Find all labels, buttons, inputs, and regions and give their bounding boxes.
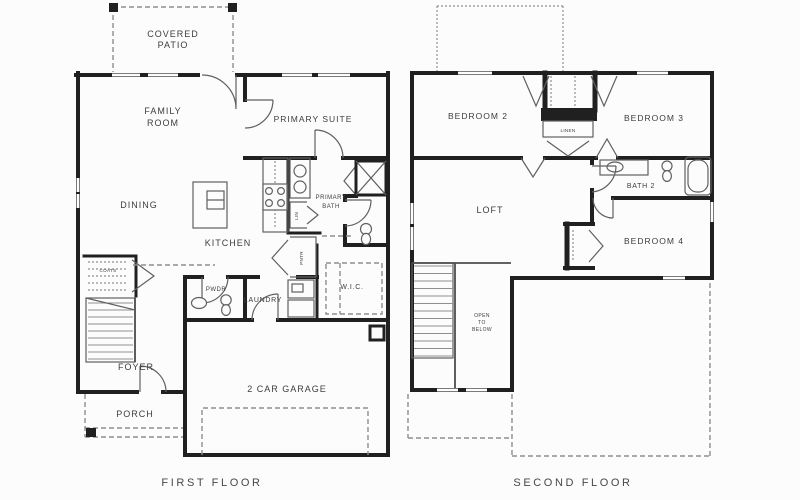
linen-door-chevron	[547, 141, 589, 156]
patio-door-arc	[202, 75, 236, 109]
toilet-icon	[361, 224, 372, 245]
sink-icon	[294, 165, 306, 177]
first-floor-title: FIRST FLOOR	[161, 477, 262, 489]
window	[112, 72, 140, 78]
window	[409, 203, 415, 224]
second-floor-plan: LINEN	[408, 6, 715, 489]
bath2-label: BATH 2	[627, 183, 655, 190]
primary-bath-door-arc	[315, 130, 343, 158]
covered-patio-label: COVERED	[147, 29, 199, 39]
toilet-icon	[221, 295, 231, 316]
powder-room-fixtures	[192, 295, 232, 316]
primary-bath-label: PRIMARY	[316, 195, 347, 201]
bifold-door-chevron	[589, 230, 603, 262]
bedroom3-label: BEDROOM 3	[624, 113, 684, 123]
sink-icon	[607, 162, 623, 172]
family-room-label: ROOM	[147, 118, 179, 128]
first-floor-plan: COVERED PATIO	[75, 3, 388, 489]
window	[466, 387, 487, 393]
bedroom2-label: BEDROOM 2	[448, 111, 508, 121]
closet-rod-icon	[551, 76, 575, 106]
porch-outline: PORCH	[85, 394, 183, 437]
foyer-label: FOYER	[118, 362, 154, 372]
porch-post-icon	[86, 428, 96, 437]
open-to-below-label: BELOW	[472, 327, 492, 333]
garage-label: 2 CAR GARAGE	[247, 384, 327, 394]
bedroom2-door-chevron	[521, 158, 545, 177]
primary-suite-door-arc	[245, 100, 273, 128]
window	[75, 194, 81, 208]
bath2-vanity	[600, 160, 648, 175]
garage-door-outline	[202, 408, 368, 455]
window	[663, 275, 685, 281]
window	[148, 72, 178, 78]
primary-bath-vanity	[290, 158, 310, 198]
pantry-door-chevron	[272, 240, 288, 275]
family-room-label: FAMILY	[144, 106, 181, 116]
bedroom3-door-chevron	[596, 139, 618, 158]
window	[709, 202, 715, 222]
linen-shelf: LINEN	[543, 121, 593, 137]
kitchen-label: KITCHEN	[205, 238, 252, 248]
patio-post-icon	[228, 3, 237, 12]
floorplan-page: COVERED PATIO	[0, 0, 800, 500]
stairs-first-floor	[86, 298, 135, 362]
bedroom-closets: LINEN	[523, 73, 617, 156]
porch-outline-below	[408, 394, 512, 438]
window	[409, 227, 415, 250]
covered-patio-label: PATIO	[158, 40, 189, 50]
linen-door-chevron	[307, 206, 318, 224]
stove-icon	[263, 184, 287, 210]
sink-icon	[192, 298, 207, 309]
second-floor-title: SECOND FLOOR	[513, 477, 632, 489]
bedroom4-closet	[565, 224, 603, 268]
water-heater-icon	[370, 326, 384, 340]
primary-bath-label: BATH	[322, 204, 340, 210]
wic-label: W.I.C.	[340, 284, 363, 291]
floorplan-drawing: COVERED PATIO	[0, 0, 800, 500]
laundry-appliances-icon	[288, 280, 314, 317]
powder-label: PWDR	[206, 287, 226, 293]
window	[458, 70, 492, 76]
bathtub-icon	[685, 157, 711, 195]
bedroom4-door-arc	[593, 198, 613, 218]
patio-outline-below	[437, 6, 563, 73]
coats-closet: COATS	[84, 256, 154, 296]
window	[318, 72, 350, 78]
stairs-second-floor	[412, 263, 453, 358]
sink-icon	[294, 181, 306, 193]
garage-outline-below	[512, 280, 710, 456]
open-to-below-label: TO	[478, 320, 486, 326]
patio-post-icon	[109, 3, 118, 12]
bath2-door-arc	[592, 166, 616, 192]
linen-label: LINEN	[560, 128, 575, 133]
first-floor-outer-walls	[76, 73, 388, 455]
window	[282, 72, 312, 78]
open-to-below-label: OPEN	[474, 313, 490, 319]
kitchen-island	[193, 182, 227, 228]
covered-patio-outline: COVERED PATIO	[109, 3, 237, 73]
shower-icon	[356, 161, 386, 195]
window	[637, 70, 668, 76]
window	[75, 178, 81, 192]
loft-label: LOFT	[476, 205, 503, 215]
bedroom4-label: BEDROOM 4	[624, 236, 684, 246]
linen-label: LIN	[294, 212, 299, 220]
primary-suite-label: PRIMARY SUITE	[274, 114, 353, 124]
toilet-room-door-arc	[345, 200, 371, 226]
porch-label: PORCH	[116, 409, 154, 419]
pantry-label: PNTR	[299, 251, 304, 265]
shower-door-chevron	[344, 166, 356, 195]
coats-label: COATS	[100, 268, 117, 273]
dining-label: DINING	[120, 200, 158, 210]
toilet-icon	[662, 161, 672, 181]
laundry-label: LAUNDRY	[244, 297, 282, 304]
